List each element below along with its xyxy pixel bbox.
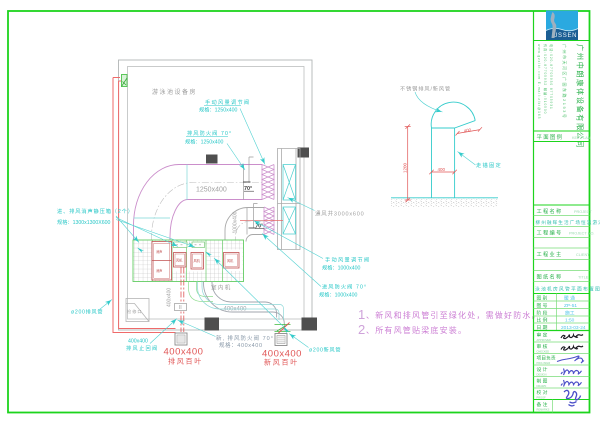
svg-text:消声: 消声 [156, 268, 162, 273]
svg-text:平面图例: 平面图例 [537, 133, 564, 141]
svg-text:规格：1300x1300X600: 规格：1300x1300X600 [57, 218, 110, 226]
svg-text:风机: 风机 [227, 258, 234, 263]
svg-text:备 注: 备 注 [537, 401, 548, 408]
svg-text:PROJECT: PROJECT [574, 210, 592, 214]
svg-text:400x400: 400x400 [262, 349, 302, 360]
svg-text:项目负责: 项目负责 [537, 355, 556, 362]
svg-text:排风防火阀 70°: 排风防火阀 70° [187, 129, 232, 137]
svg-text:制 图: 制 图 [537, 378, 548, 385]
svg-text:REMARKS: REMARKS [537, 408, 550, 412]
svg-text:新, 排风防火阀 70°: 新, 排风防火阀 70° [216, 334, 274, 342]
svg-text:柳州融晖生活广场恒温游泳池: 柳州融晖生活广场恒温游泳池 [536, 219, 600, 226]
svg-text:图纸名称: 图纸名称 [537, 273, 563, 281]
svg-text:风机: 风机 [176, 258, 183, 263]
svg-text:PROOF: PROOF [537, 395, 547, 399]
svg-text:PROJECT NO.: PROJECT NO. [569, 232, 594, 236]
svg-text:泳池机房风管平面布置图: 泳池机房风管平面布置图 [535, 286, 600, 293]
svg-text:排风百叶: 排风百叶 [168, 357, 203, 366]
svg-text:1200: 1200 [402, 162, 407, 173]
svg-text:工程编号: 工程编号 [537, 229, 563, 237]
svg-text:比 例: 比 例 [537, 317, 548, 324]
svg-text:消声: 消声 [156, 249, 162, 254]
svg-text:游泳池设备房: 游泳池设备房 [152, 88, 197, 96]
svg-text:进、排风消声静压箱（2个）: 进、排风消声静压箱（2个） [57, 207, 134, 215]
svg-text:广州中朗康体设备有限公司: 广州中朗康体设备有限公司 [576, 44, 585, 149]
svg-text:1:50: 1:50 [565, 318, 575, 324]
svg-text:规格：1000x400: 规格：1000x400 [319, 291, 357, 299]
svg-text:室内机: 室内机 [211, 284, 232, 292]
svg-text:www.gzzlkt.com E-mail:zlkt@163: www.gzzlkt.com E-mail:zlkt@163 [537, 44, 541, 119]
svg-text:排风止回阀: 排风止回阀 [126, 344, 158, 352]
svg-text:施工: 施工 [565, 310, 575, 317]
svg-text:工程业主: 工程业主 [537, 250, 563, 258]
svg-text:400x400: 400x400 [164, 347, 204, 358]
svg-text:传真:020-87705932 邮编:510500: 传真:020-87705932 邮编:510500 [543, 44, 548, 114]
svg-text:1: 1 [358, 307, 365, 322]
svg-text:规格：1250x400: 规格：1250x400 [199, 106, 237, 114]
svg-text:走锚固定: 走锚固定 [476, 161, 502, 169]
svg-text:ø200新风管: ø200新风管 [309, 346, 341, 354]
svg-text:设 计: 设 计 [537, 366, 548, 373]
svg-text:审 核: 审 核 [537, 343, 548, 350]
svg-text:APPROVED: APPROVED [537, 338, 552, 342]
svg-text:检修口: 检修口 [127, 308, 143, 315]
svg-text:电话:020-87705930 87705931: 电话:020-87705930 87705931 [549, 44, 554, 110]
svg-text:ø200排风管: ø200排风管 [71, 308, 103, 316]
svg-text:USSEN: USSEN [553, 33, 577, 39]
svg-text:KEY PLAN: KEY PLAN [572, 136, 591, 140]
svg-text:工程名称: 工程名称 [537, 207, 563, 215]
svg-text:1000x400: 1000x400 [233, 211, 239, 233]
svg-text:手动风量调节阀: 手动风量调节阀 [205, 98, 250, 106]
svg-text:1250x400: 1250x400 [196, 187, 227, 194]
svg-text:2: 2 [358, 322, 365, 337]
svg-text:图 别: 图 别 [537, 295, 548, 302]
svg-text:风机: 风机 [194, 258, 201, 263]
svg-text:暖 通: 暖 通 [564, 295, 575, 302]
svg-text:校 对: 校 对 [537, 389, 548, 396]
svg-text:广州市天河区广园东路2193号: 广州市天河区广园东路2193号 [562, 44, 568, 119]
svg-text:CLIENT: CLIENT [576, 253, 590, 257]
svg-text:图 号: 图 号 [537, 303, 548, 309]
svg-text:TITLE: TITLE [578, 276, 589, 280]
svg-text:手动风量调节阀: 手动风量调节阀 [325, 256, 370, 264]
svg-text:400: 400 [438, 167, 446, 172]
svg-text:不锈钢排风/新风管: 不锈钢排风/新风管 [400, 85, 451, 93]
svg-text:规格：400x400: 规格：400x400 [219, 341, 263, 349]
svg-text:进风防火阀 70°: 进风防火阀 70° [322, 283, 367, 291]
svg-text:、所有风管贴梁底安装。: 、所有风管贴梁底安装。 [366, 325, 467, 335]
svg-text:DRAWN: DRAWN [537, 384, 547, 388]
svg-text:PROJ.MGR: PROJ.MGR [537, 361, 551, 365]
svg-text:400x400: 400x400 [128, 339, 148, 345]
svg-text:规格：1250x400: 规格：1250x400 [185, 138, 223, 146]
svg-text:阶 段: 阶 段 [537, 310, 548, 317]
svg-text:ZP-51: ZP-51 [564, 303, 577, 309]
svg-text:审 定: 审 定 [537, 332, 548, 339]
svg-text:CHECKED: CHECKED [537, 349, 550, 353]
svg-text:400x400: 400x400 [167, 288, 173, 307]
svg-text:、新风和排风管引至绿化处，需做好防水。: 、新风和排风管引至绿化处，需做好防水。 [366, 310, 541, 320]
svg-text:新风百叶: 新风百叶 [264, 358, 299, 367]
svg-text:400x400: 400x400 [224, 307, 248, 313]
svg-text:DESIGN: DESIGN [537, 372, 547, 376]
svg-text:通风井3000x600: 通风井3000x600 [315, 210, 364, 218]
svg-text:规格：1000x400: 规格：1000x400 [322, 264, 360, 272]
